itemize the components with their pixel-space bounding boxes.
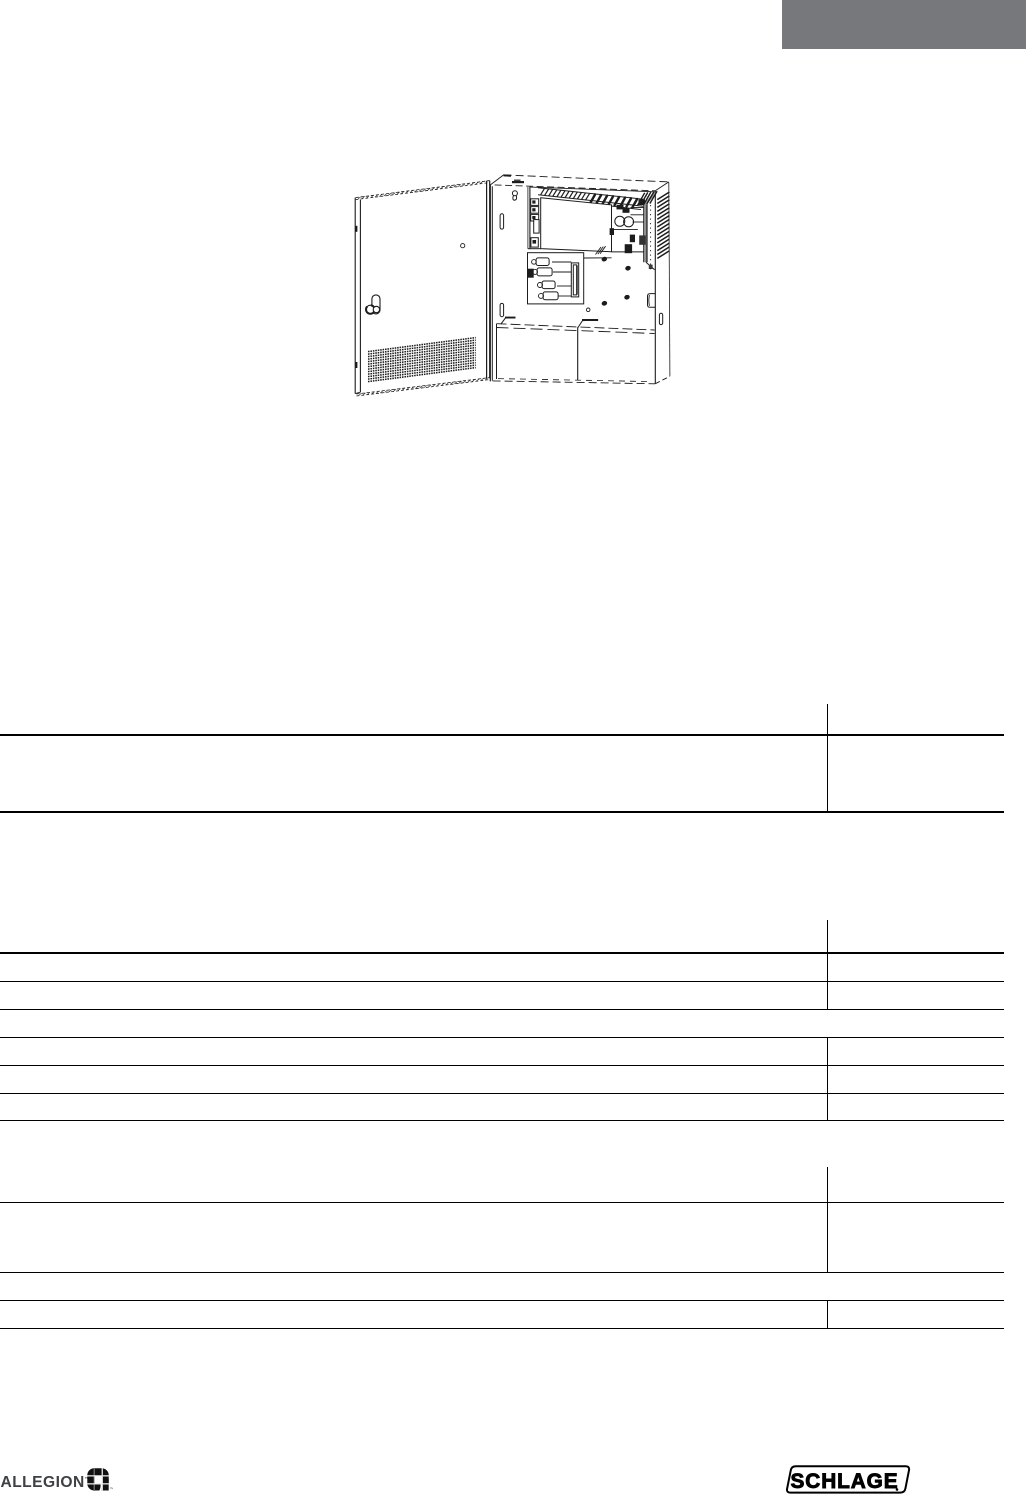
svg-text:SCHLAGE: SCHLAGE <box>791 1470 899 1493</box>
svg-text:™: ™ <box>109 1486 113 1491</box>
